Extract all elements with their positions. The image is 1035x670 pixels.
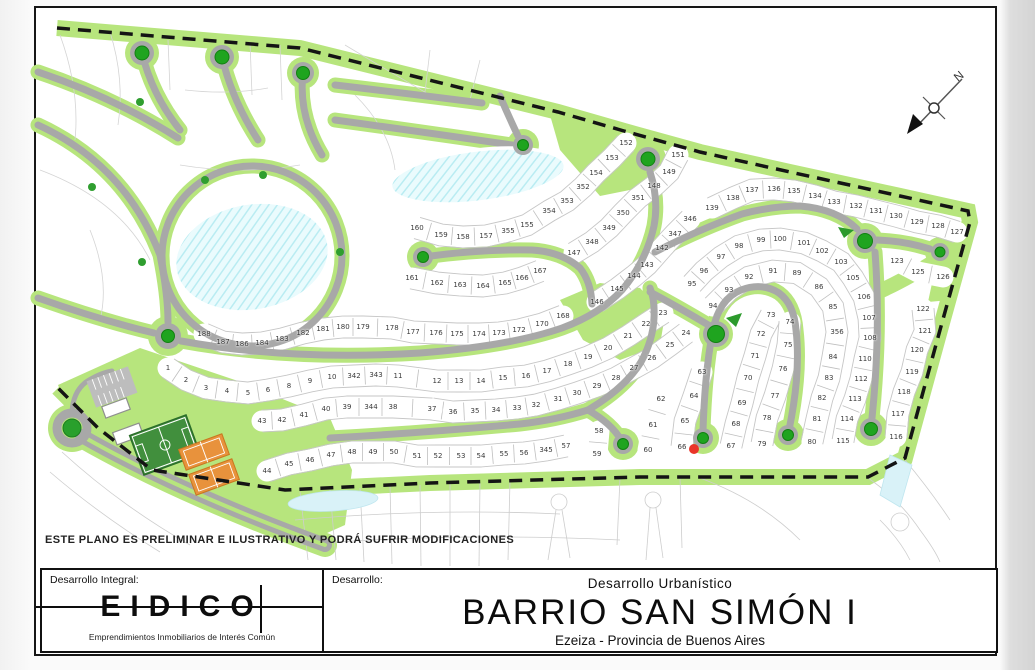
lot-label: 164 bbox=[476, 282, 489, 290]
lot-label: 186 bbox=[235, 340, 248, 348]
lot-label: 151 bbox=[671, 151, 684, 159]
lot-label: 43 bbox=[258, 417, 267, 425]
lot-label: 344 bbox=[364, 403, 377, 411]
eidico-tagline: Emprendimientos Inmobiliarios de Interés… bbox=[42, 632, 322, 642]
lot-label: 40 bbox=[322, 405, 331, 413]
lot-label: 56 bbox=[520, 449, 529, 457]
lot-label: 59 bbox=[593, 450, 602, 458]
lot-label: 14 bbox=[477, 377, 486, 385]
lot-label: 54 bbox=[477, 452, 486, 460]
lot-label: 176 bbox=[429, 329, 442, 337]
lot-label: 95 bbox=[688, 280, 697, 288]
lot-label: 72 bbox=[757, 330, 766, 338]
lot-label: 12 bbox=[433, 377, 442, 385]
lot-label: 15 bbox=[499, 374, 508, 382]
lot-label: 135 bbox=[787, 187, 800, 195]
lot-label: 353 bbox=[560, 197, 573, 205]
lot-label: 65 bbox=[681, 417, 690, 425]
eidico-logo-strikethrough bbox=[36, 606, 324, 608]
lot-label: 162 bbox=[430, 279, 443, 287]
lot-label: 155 bbox=[520, 221, 533, 229]
lot-label: 146 bbox=[590, 298, 603, 306]
lot-label: 144 bbox=[627, 272, 640, 280]
lot-label: 49 bbox=[369, 448, 378, 456]
lot-label: 354 bbox=[542, 207, 555, 215]
lot-label: 18 bbox=[564, 360, 573, 368]
lot-label: 116 bbox=[889, 433, 902, 441]
lot-label: 84 bbox=[829, 353, 838, 361]
lot-label: 133 bbox=[827, 198, 840, 206]
eidico-logo-crosshair bbox=[260, 585, 262, 633]
lot-label: 149 bbox=[662, 168, 675, 176]
lot-label: 152 bbox=[619, 139, 632, 147]
lot-label: 58 bbox=[595, 427, 604, 435]
lot-label: 45 bbox=[285, 460, 294, 468]
lot-label: 180 bbox=[336, 323, 349, 331]
lot-label: 131 bbox=[869, 207, 882, 215]
lot-label: 46 bbox=[306, 456, 315, 464]
lot-label: 50 bbox=[390, 448, 399, 456]
lot-label: 61 bbox=[649, 421, 658, 429]
lot-label: 106 bbox=[857, 293, 870, 301]
lot-label: 126 bbox=[936, 273, 949, 281]
project-cell: Desarrollo: Desarrollo Urbanístico BARRI… bbox=[324, 570, 996, 651]
lot-label: 73 bbox=[767, 311, 776, 319]
lot-label: 114 bbox=[840, 415, 853, 423]
disclaimer-text: ESTE PLANO ES PRELIMINAR E ILUSTRATIVO Y… bbox=[45, 534, 514, 546]
title-block: Desarrollo Integral: EIDICO Emprendimien… bbox=[40, 568, 998, 653]
project-name: BARRIO SAN SIMÓN I bbox=[324, 593, 996, 633]
lot-label: 100 bbox=[773, 235, 786, 243]
lot-label: 53 bbox=[457, 452, 466, 460]
lot-label: 79 bbox=[758, 440, 767, 448]
lot-label: 160 bbox=[410, 224, 423, 232]
lot-label: 139 bbox=[705, 204, 718, 212]
lot-label: 158 bbox=[456, 233, 469, 241]
lot-label: 31 bbox=[554, 395, 563, 403]
eidico-logo: EIDICO bbox=[42, 590, 322, 624]
lot-label: 130 bbox=[889, 212, 902, 220]
lot-label: 188 bbox=[197, 330, 210, 338]
lot-label: 345 bbox=[539, 446, 552, 454]
developer-cell: Desarrollo Integral: EIDICO Emprendimien… bbox=[42, 570, 324, 651]
lot-label: 147 bbox=[567, 249, 580, 257]
lot-label: 1 bbox=[166, 364, 170, 372]
lot-label: 78 bbox=[763, 414, 772, 422]
lot-label: 27 bbox=[630, 364, 639, 372]
lot-label: 163 bbox=[453, 281, 466, 289]
lot-label: 101 bbox=[797, 239, 810, 247]
lot-label: 178 bbox=[385, 324, 398, 332]
development-type: Desarrollo Urbanístico bbox=[324, 576, 996, 591]
lot-label: 93 bbox=[725, 286, 734, 294]
lot-label: 52 bbox=[434, 452, 443, 460]
lot-label: 9 bbox=[308, 377, 312, 385]
lot-label: 347 bbox=[668, 230, 681, 238]
lot-label: 47 bbox=[327, 451, 336, 459]
lot-label: 96 bbox=[700, 267, 709, 275]
lot-label: 99 bbox=[757, 236, 766, 244]
lot-label: 8 bbox=[287, 382, 291, 390]
lot-label: 22 bbox=[642, 320, 651, 328]
lot-label: 74 bbox=[786, 318, 795, 326]
lot-label: 2 bbox=[184, 376, 188, 384]
lot-label: 103 bbox=[834, 258, 847, 266]
lot-label: 26 bbox=[648, 354, 657, 362]
lot-label: 3 bbox=[204, 384, 208, 392]
lot-label: 85 bbox=[829, 303, 838, 311]
lot-label: 355 bbox=[501, 227, 514, 235]
lot-label: 110 bbox=[858, 355, 871, 363]
lot-label: 28 bbox=[612, 374, 621, 382]
lot-label: 64 bbox=[690, 392, 699, 400]
developer-cell-label: Desarrollo Integral: bbox=[50, 574, 139, 586]
lot-label: 23 bbox=[659, 309, 668, 317]
lot-label: 105 bbox=[846, 274, 859, 282]
lot-label: 125 bbox=[911, 268, 924, 276]
lot-label: 13 bbox=[455, 377, 464, 385]
lot-label: 122 bbox=[916, 305, 929, 313]
lot-label: 6 bbox=[266, 386, 270, 394]
lot-label: 60 bbox=[644, 446, 653, 454]
lot-label: 30 bbox=[573, 389, 582, 397]
lot-label: 76 bbox=[779, 365, 788, 373]
lot-label: 55 bbox=[500, 450, 509, 458]
lot-label: 19 bbox=[584, 353, 593, 361]
lot-label: 115 bbox=[836, 437, 849, 445]
lot-label: 41 bbox=[300, 411, 309, 419]
lot-label: 36 bbox=[449, 408, 458, 416]
lot-label: 138 bbox=[726, 194, 739, 202]
lot-label: 346 bbox=[683, 215, 696, 223]
lot-label: 348 bbox=[585, 238, 598, 246]
lot-label: 70 bbox=[744, 374, 753, 382]
lot-label: 80 bbox=[808, 438, 817, 446]
lot-label: 10 bbox=[328, 373, 337, 381]
lot-label: 117 bbox=[891, 410, 904, 418]
lot-label: 153 bbox=[605, 154, 618, 162]
lot-label: 165 bbox=[498, 279, 511, 287]
lot-label: 68 bbox=[732, 420, 741, 428]
lot-label: 69 bbox=[738, 399, 747, 407]
lot-label: 352 bbox=[576, 183, 589, 191]
lot-label: 77 bbox=[771, 392, 780, 400]
lot-label: 38 bbox=[389, 403, 398, 411]
lot-label: 97 bbox=[717, 253, 726, 261]
lot-label: 123 bbox=[890, 257, 903, 265]
lot-label: 29 bbox=[593, 382, 602, 390]
lot-label: 351 bbox=[631, 194, 644, 202]
lot-label: 179 bbox=[356, 323, 369, 331]
lot-label: 343 bbox=[369, 371, 382, 379]
lot-label: 143 bbox=[640, 261, 653, 269]
lot-label: 129 bbox=[910, 218, 923, 226]
lot-label: 62 bbox=[657, 395, 666, 403]
lot-label: 187 bbox=[216, 338, 229, 346]
lot-label: 92 bbox=[745, 273, 754, 281]
lot-label: 128 bbox=[931, 222, 944, 230]
lot-label: 102 bbox=[815, 247, 828, 255]
lot-label: 91 bbox=[769, 267, 778, 275]
lot-label: 98 bbox=[735, 242, 744, 250]
project-location: Ezeiza - Provincia de Buenos Aires bbox=[324, 633, 996, 648]
lot-label: 154 bbox=[589, 169, 602, 177]
lot-label: 89 bbox=[793, 269, 802, 277]
lot-label: 166 bbox=[515, 274, 528, 282]
lot-label: 134 bbox=[808, 192, 821, 200]
lot-label: 167 bbox=[533, 267, 546, 275]
lot-label: 159 bbox=[434, 231, 447, 239]
lot-label: 107 bbox=[862, 314, 875, 322]
lot-label: 108 bbox=[863, 334, 876, 342]
lot-label: 183 bbox=[275, 335, 288, 343]
lot-label: 161 bbox=[405, 274, 418, 282]
lot-label: 24 bbox=[682, 329, 691, 337]
lot-label: 48 bbox=[348, 448, 357, 456]
lot-label: 86 bbox=[815, 283, 824, 291]
lot-label: 145 bbox=[610, 285, 623, 293]
lot-label: 113 bbox=[848, 395, 861, 403]
lot-label: 181 bbox=[316, 325, 329, 333]
lot-label: 137 bbox=[745, 186, 758, 194]
lot-label: 21 bbox=[624, 332, 633, 340]
lot-label: 34 bbox=[492, 406, 501, 414]
lot-label: 168 bbox=[556, 312, 569, 320]
lot-label: 172 bbox=[512, 326, 525, 334]
lot-label: 37 bbox=[428, 405, 437, 413]
lot-label: 57 bbox=[562, 442, 571, 450]
lot-label: 148 bbox=[647, 182, 660, 190]
lot-label: 44 bbox=[263, 467, 272, 475]
lot-label: 32 bbox=[532, 401, 541, 409]
lot-label: 182 bbox=[296, 329, 309, 337]
lot-label: 118 bbox=[897, 388, 910, 396]
lot-label: 11 bbox=[394, 372, 403, 380]
lot-label: 119 bbox=[905, 368, 918, 376]
lot-label: 35 bbox=[471, 407, 480, 415]
lot-label: 94 bbox=[709, 302, 718, 310]
lot-label: 174 bbox=[472, 330, 485, 338]
lot-label: 5 bbox=[246, 389, 250, 397]
lot-label: 177 bbox=[406, 328, 419, 336]
lot-label: 75 bbox=[784, 341, 793, 349]
lot-label: 184 bbox=[255, 339, 268, 347]
lot-label: 342 bbox=[347, 372, 360, 380]
lot-label: 112 bbox=[854, 375, 867, 383]
lot-label: 83 bbox=[825, 374, 834, 382]
lot-label: 4 bbox=[225, 387, 229, 395]
lot-label: 33 bbox=[513, 404, 522, 412]
lot-label: 356 bbox=[830, 328, 843, 336]
lot-label: 17 bbox=[543, 367, 552, 375]
lot-label: 120 bbox=[910, 346, 923, 354]
lot-label: 170 bbox=[535, 320, 548, 328]
lot-label: 127 bbox=[950, 228, 963, 236]
lot-label: 82 bbox=[818, 394, 827, 402]
lot-label: 349 bbox=[602, 224, 615, 232]
lot-label: 25 bbox=[666, 341, 675, 349]
lot-label: 350 bbox=[616, 209, 629, 217]
lot-label: 175 bbox=[450, 330, 463, 338]
lot-label: 63 bbox=[698, 368, 707, 376]
lot-label: 66 bbox=[678, 443, 687, 451]
lot-label: 136 bbox=[767, 185, 780, 193]
site-plan-page: N 12345689103423431112131415161718192021… bbox=[0, 0, 1035, 670]
lot-label: 142 bbox=[655, 244, 668, 252]
lot-label: 39 bbox=[343, 403, 352, 411]
lot-label: 42 bbox=[278, 416, 287, 424]
lot-label: 51 bbox=[413, 452, 422, 460]
lot-labels-layer: 1234568910342343111213141516171819202122… bbox=[0, 0, 1035, 570]
lot-label: 67 bbox=[727, 442, 736, 450]
lot-label: 81 bbox=[813, 415, 822, 423]
lot-label: 71 bbox=[751, 352, 760, 360]
lot-label: 121 bbox=[918, 327, 931, 335]
lot-label: 132 bbox=[849, 202, 862, 210]
lot-label: 173 bbox=[492, 329, 505, 337]
lot-label: 157 bbox=[479, 232, 492, 240]
lot-label: 20 bbox=[604, 344, 613, 352]
lot-label: 16 bbox=[522, 372, 531, 380]
